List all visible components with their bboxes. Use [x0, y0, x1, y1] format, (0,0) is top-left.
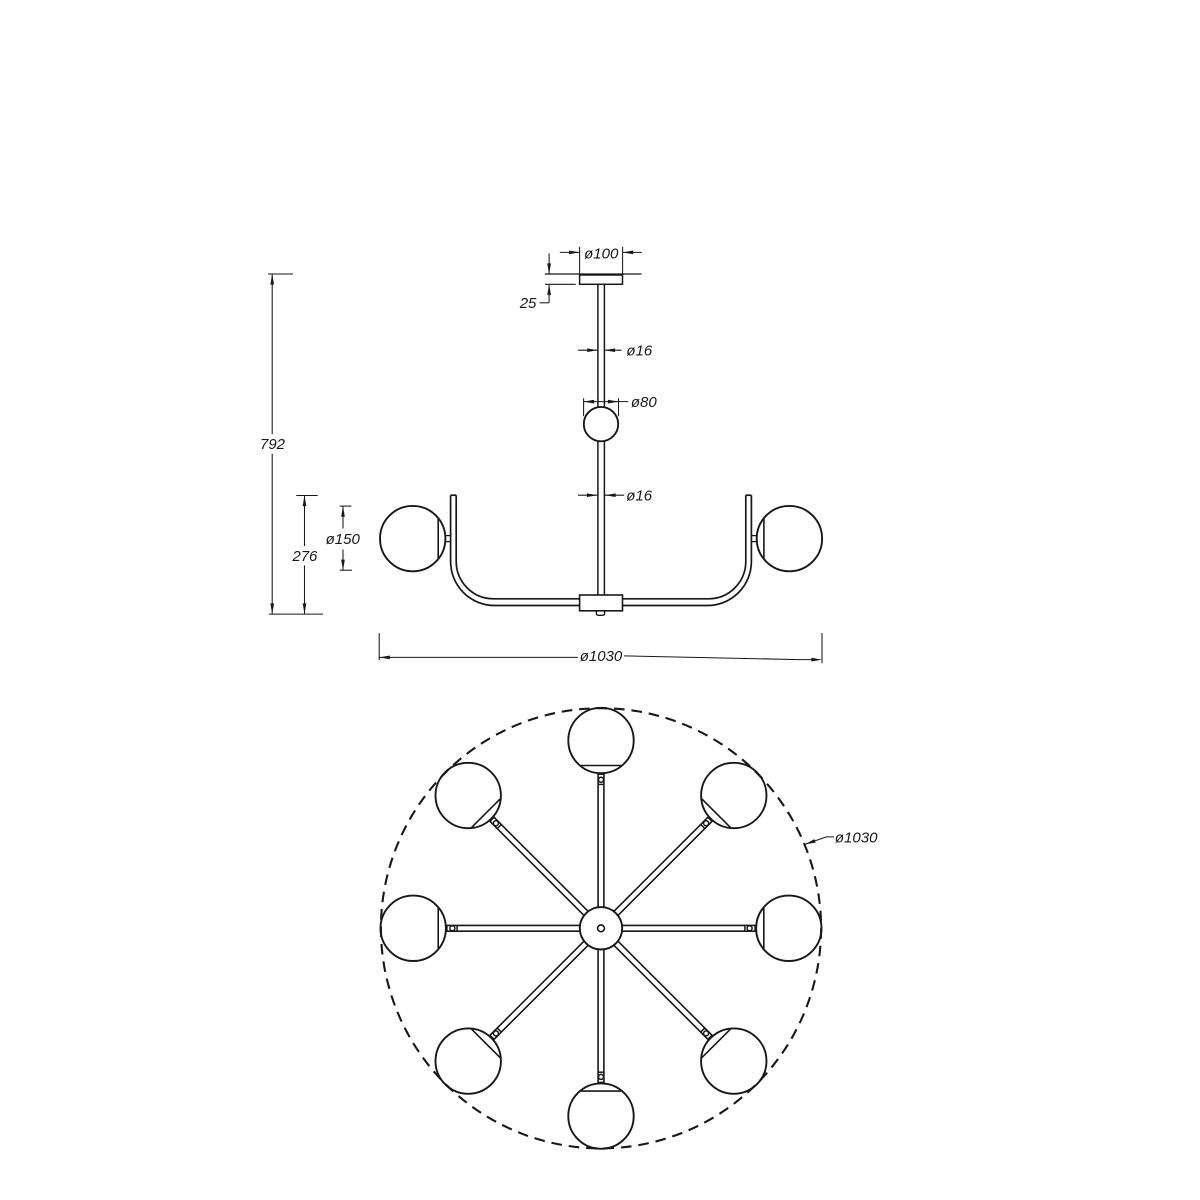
svg-text:25: 25 [519, 295, 537, 312]
svg-text:ø80: ø80 [631, 394, 658, 411]
svg-text:ø16: ø16 [626, 488, 653, 505]
svg-text:792: 792 [260, 436, 286, 453]
svg-text:ø1030: ø1030 [580, 648, 623, 665]
svg-text:ø150: ø150 [326, 531, 361, 548]
svg-text:276: 276 [291, 548, 318, 565]
svg-text:ø1030: ø1030 [835, 829, 878, 846]
svg-text:ø100: ø100 [584, 245, 619, 262]
svg-text:ø16: ø16 [626, 342, 653, 359]
